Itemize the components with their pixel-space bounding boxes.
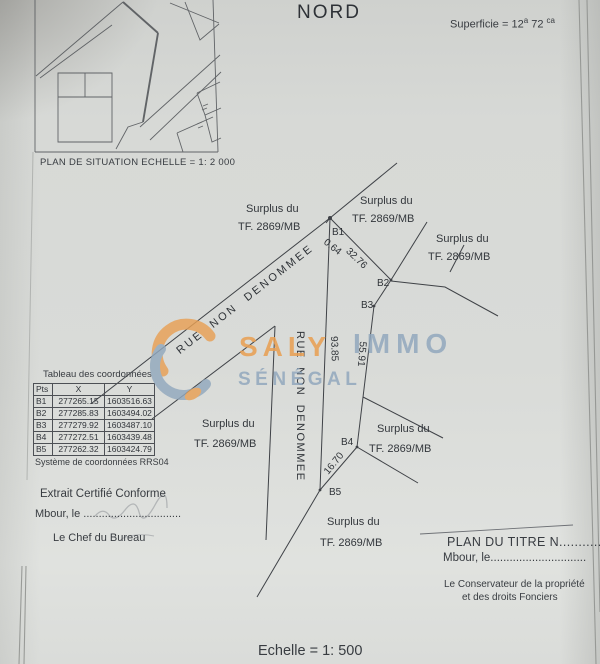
watermark-word-immo: IMMO (353, 328, 453, 360)
watermark-word-senegal: SÉNÉGAL (238, 369, 361, 391)
watermark-word-saly: SALY (239, 331, 331, 363)
scanned-survey-plan: NORD Superficie = 12a 72 ca PLAN DE SITU… (0, 0, 600, 664)
